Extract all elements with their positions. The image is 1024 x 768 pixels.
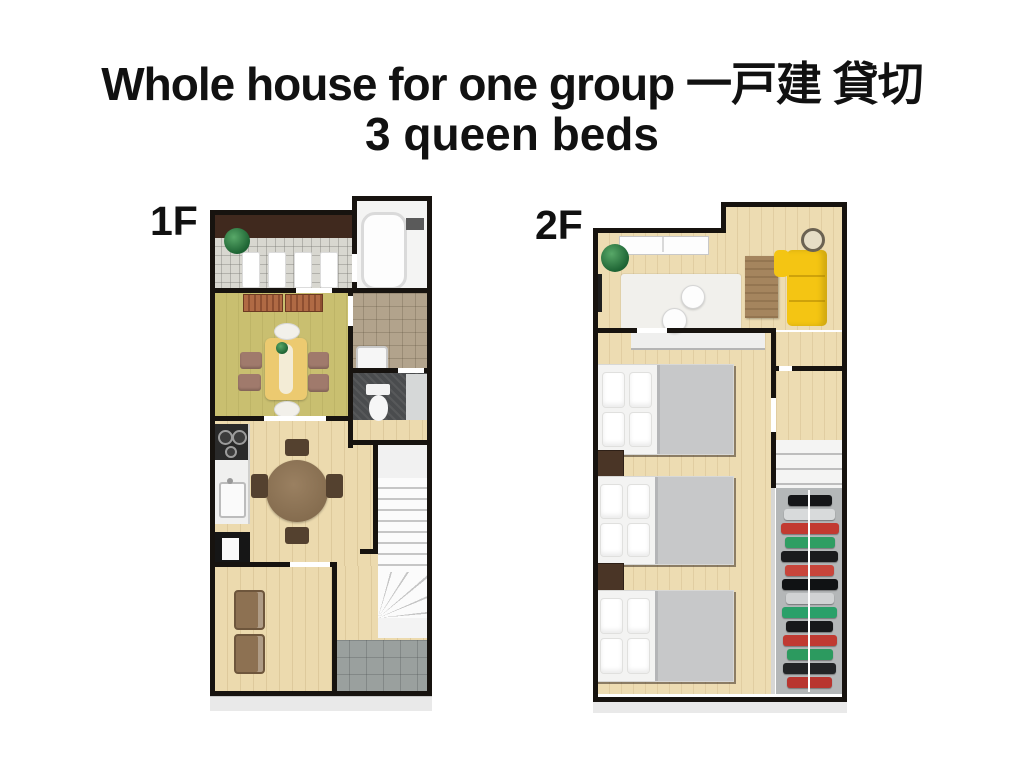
- outer-wall-face: [210, 696, 432, 711]
- entrance-mat: [320, 252, 338, 288]
- seat-cushion: [308, 352, 329, 369]
- utility-tile-floor: [332, 640, 428, 692]
- floor-label-1f: 1F: [150, 198, 198, 245]
- bed-pillows: [602, 372, 652, 447]
- bath-shelf: [406, 218, 424, 230]
- sitting-room-floor: [214, 566, 332, 692]
- shoe-bench: [243, 294, 283, 312]
- pillow: [629, 412, 652, 448]
- lounge-chair: [234, 590, 265, 630]
- wall: [721, 202, 726, 233]
- faucet-icon: [227, 478, 233, 484]
- wall: [842, 202, 847, 698]
- bed-pillows: [600, 598, 650, 674]
- pillow: [602, 372, 625, 408]
- chair: [251, 474, 268, 498]
- wall: [360, 549, 378, 554]
- wall: [593, 328, 776, 333]
- pillow: [627, 598, 650, 634]
- table-plant-icon: [276, 342, 288, 354]
- bed-blanket: [655, 591, 733, 681]
- floorplan-2f: [593, 202, 847, 714]
- door-opening: [264, 416, 326, 421]
- queen-bed: [594, 590, 734, 682]
- shelf-unit: [776, 440, 843, 488]
- pillow: [600, 638, 623, 674]
- kitchen-sink: [219, 482, 246, 518]
- wall: [427, 196, 432, 696]
- dining-chair: [274, 323, 300, 340]
- refrigerator-door: [222, 538, 239, 560]
- stair-landing: [378, 618, 428, 638]
- entrance-mat: [242, 252, 260, 288]
- stove-burner-icon: [232, 430, 247, 445]
- page-subtitle: 3 queen beds: [0, 107, 1024, 161]
- floorplan-1f: [210, 196, 432, 712]
- pillow: [602, 412, 625, 448]
- door-opening: [348, 296, 353, 326]
- chair: [285, 527, 309, 544]
- pillow: [627, 484, 650, 519]
- sofa-seam: [789, 275, 825, 277]
- staircase-winder: [378, 572, 428, 618]
- built-in-closet: [631, 333, 765, 350]
- floor-plan-page: Whole house for one group 一戸建 貸切 3 queen…: [0, 0, 1024, 768]
- shoe-bench: [285, 294, 323, 312]
- door-opening: [779, 366, 792, 371]
- staircase: [378, 478, 428, 572]
- stove-burner-icon: [218, 430, 233, 445]
- stove-burner-icon: [225, 446, 237, 458]
- wall: [373, 440, 378, 554]
- plant-icon: [224, 228, 250, 254]
- sofa: [787, 250, 827, 326]
- bed-pillows: [600, 484, 650, 557]
- sideboard-divider: [662, 237, 664, 252]
- toilet-tank: [366, 384, 390, 395]
- pillow: [600, 484, 623, 519]
- wall: [210, 691, 432, 696]
- nightstand: [594, 563, 624, 592]
- pillow: [600, 523, 623, 558]
- coffee-table: [681, 285, 705, 309]
- door-opening: [637, 328, 667, 333]
- queen-bed: [594, 476, 734, 565]
- wall: [593, 697, 847, 702]
- lounge-chair: [234, 634, 265, 674]
- wall: [350, 440, 432, 445]
- pillow: [627, 638, 650, 674]
- door-opening: [771, 398, 776, 432]
- pillow: [629, 372, 652, 408]
- wall: [593, 228, 598, 698]
- seat-cushion: [308, 374, 329, 392]
- door-opening: [398, 368, 424, 373]
- bed-blanket: [655, 477, 733, 564]
- bathtub: [361, 212, 407, 290]
- wall: [721, 202, 847, 207]
- sofa-seam: [789, 300, 825, 302]
- wall: [352, 196, 432, 201]
- chair: [285, 439, 309, 456]
- pillow: [627, 523, 650, 558]
- floor-label-2f: 2F: [535, 202, 583, 249]
- tv-sideboard: [619, 236, 709, 255]
- round-table: [266, 460, 328, 522]
- queen-bed: [596, 364, 734, 455]
- door-opening: [290, 562, 330, 567]
- stair-closet: [377, 444, 430, 480]
- page-title: Whole house for one group 一戸建 貸切: [0, 48, 1024, 114]
- entrance-mat: [268, 252, 286, 288]
- seat-cushion: [238, 374, 261, 391]
- plant-icon: [601, 244, 629, 272]
- door-opening: [296, 288, 332, 293]
- toilet-bowl: [369, 395, 388, 421]
- closet-rail: [808, 490, 810, 692]
- door-opening: [352, 254, 357, 282]
- wall: [210, 210, 215, 696]
- sofa-arm: [774, 250, 789, 277]
- nightstand: [594, 450, 624, 478]
- entrance-mat: [294, 252, 312, 288]
- chair: [326, 474, 343, 498]
- seat-cushion: [240, 352, 262, 369]
- wall: [210, 210, 356, 215]
- closet-sliding-door: [771, 488, 775, 694]
- bed-blanket: [657, 365, 733, 454]
- wall: [593, 228, 725, 233]
- floor-lamp-icon: [801, 228, 825, 252]
- pillow: [600, 598, 623, 634]
- wall: [332, 562, 337, 696]
- corridor-floor: [776, 332, 843, 440]
